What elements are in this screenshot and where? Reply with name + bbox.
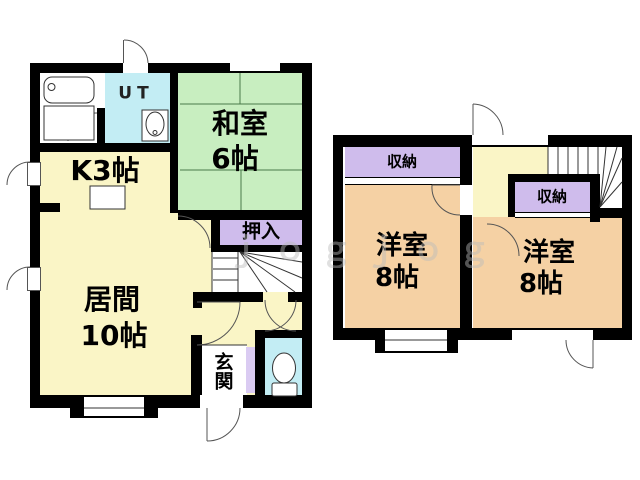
label-storage-right: 収納: [537, 190, 567, 205]
storage-left-sliding-door: [345, 177, 460, 185]
floor-plan: UT 和室 6帖 K3帖 押入 居間 10帖 玄関 収納 収納 洋室 8帖 洋室…: [0, 0, 640, 480]
door-2f-leftroom-gap: [460, 185, 472, 215]
door-1f-kitchen-leaf: [27, 162, 41, 186]
label-living-size: 10帖: [81, 322, 148, 350]
wall-2f-storage-r-left: [508, 174, 515, 217]
label-yoshitsu-right-size: 8帖: [519, 271, 563, 297]
label-storage-left: 収納: [387, 155, 417, 170]
wall-1f-genkan-left: [191, 335, 202, 397]
wall-1f-understairs-b: [288, 292, 302, 302]
wall-1f-kitchen-south: [30, 203, 60, 212]
watermark-text: ｊｏｇｊｏｇ: [228, 224, 504, 270]
wall-1f-washitsu-south: [178, 210, 312, 220]
baywindow-1f-block-left: [70, 395, 84, 418]
baywindow-2f-block-right: [447, 328, 458, 353]
wall-2f-right: [622, 135, 632, 340]
wall-1f-bath-ut: [97, 108, 105, 143]
label-kitchen: K3帖: [70, 157, 139, 185]
label-yoshitsu-right-name: 洋室: [523, 240, 575, 266]
label-washitsu-size: 6帖: [211, 145, 258, 173]
label-washitsu-name: 和室: [212, 110, 268, 138]
wall-1f-understairs-a: [193, 292, 263, 302]
baywindow-1f-glass: [84, 397, 144, 418]
baywindow-2f-block-left: [375, 328, 385, 353]
hall-2f-side: [473, 182, 508, 222]
wall-1f-understairs-c: [193, 292, 202, 308]
label-ut: UT: [118, 86, 153, 103]
window-1f-washitsu: [230, 63, 280, 73]
door-1f-living-leaf: [27, 267, 41, 291]
baywindow-2f-glass: [385, 330, 447, 353]
wall-2f-stair-bottom: [598, 208, 622, 218]
shoe-cabinet: [246, 347, 255, 393]
wall-1f-toilet-left: [255, 330, 265, 397]
wall-2f-storage-r-top: [508, 174, 598, 182]
room-toilet: [265, 338, 302, 397]
door-2f-balcony-gap: [512, 328, 593, 342]
wall-1f-bathrow-bottom: [40, 143, 178, 152]
door-1f-entrance-gap: [200, 395, 243, 408]
wall-1f-left: [30, 63, 40, 408]
door-1f-ut-gap: [123, 63, 148, 73]
door-2f-entry-gap: [472, 135, 548, 147]
label-genkan: 玄関: [213, 352, 232, 390]
baywindow-1f-block-right: [144, 395, 158, 418]
label-living-name: 居間: [84, 286, 140, 314]
bathtub: [44, 77, 94, 140]
storage-right-sliding-door: [515, 212, 590, 218]
